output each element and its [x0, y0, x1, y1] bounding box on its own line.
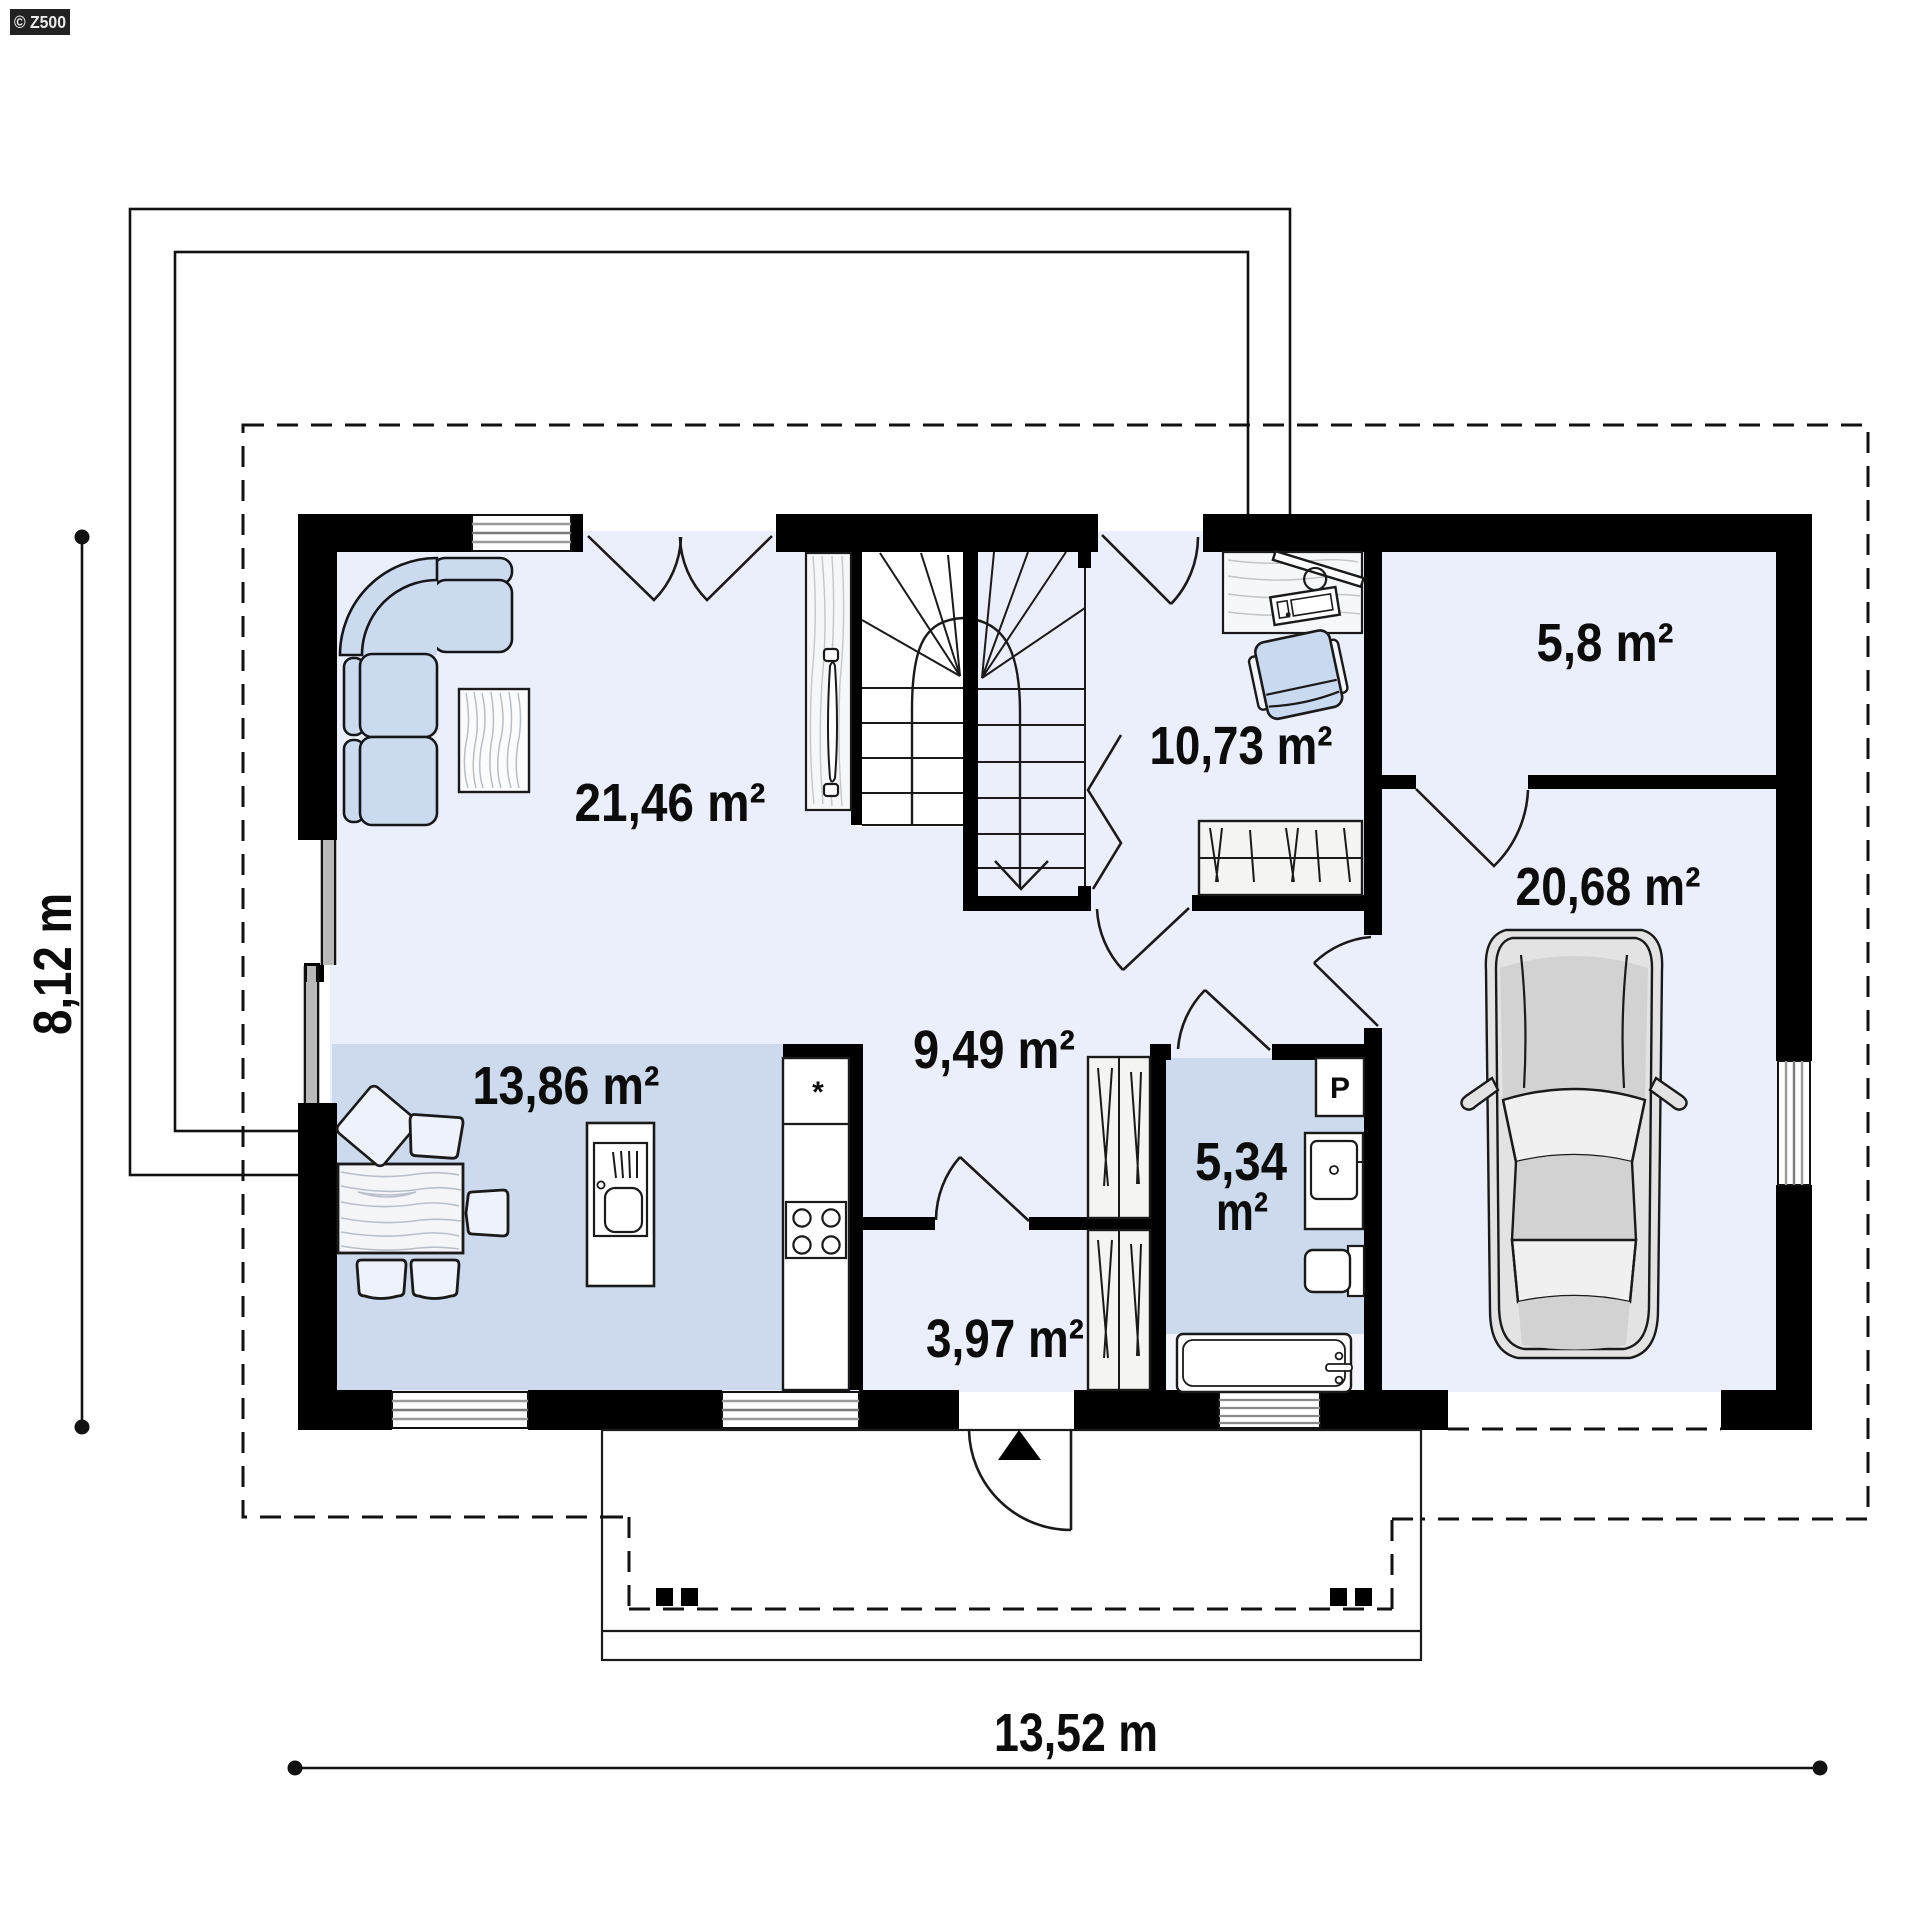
- svg-text:13,86 m²: 13,86 m²: [473, 1056, 660, 1116]
- svg-text:21,46 m²: 21,46 m²: [575, 773, 766, 833]
- svg-text:10,73 m²: 10,73 m²: [1150, 716, 1333, 776]
- svg-text:13,52 m: 13,52 m: [994, 1703, 1158, 1763]
- svg-text:3,97 m²: 3,97 m²: [926, 1309, 1084, 1369]
- svg-text:20,68 m²: 20,68 m²: [1516, 857, 1701, 917]
- svg-text:*: *: [812, 1076, 824, 1109]
- svg-text:9,49 m²: 9,49 m²: [913, 1020, 1075, 1080]
- svg-text:P: P: [1330, 1072, 1350, 1105]
- svg-text:m²: m²: [1216, 1182, 1268, 1242]
- svg-text:5,8 m²: 5,8 m²: [1537, 613, 1674, 673]
- svg-text:8,12 m: 8,12 m: [23, 893, 83, 1035]
- svg-text:© Z500: © Z500: [14, 12, 66, 32]
